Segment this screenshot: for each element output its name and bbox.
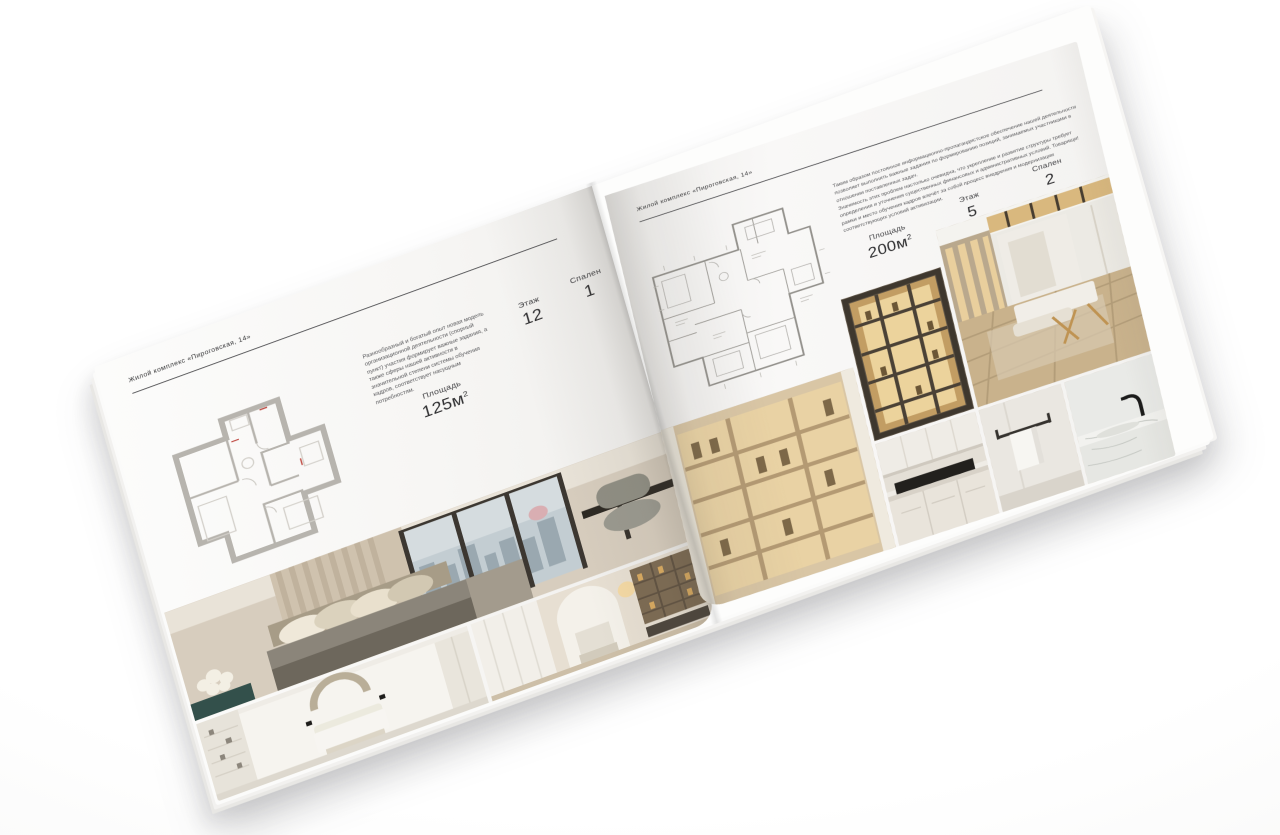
stat-area-sup: 2: [462, 389, 469, 399]
page-header-title: Жилой комплекс «Пироговская, 14»: [636, 170, 753, 213]
stat-floor: Этаж 12: [497, 287, 565, 337]
page-header-title: Жилой комплекс «Пироговская, 14»: [128, 334, 252, 384]
header-rule: [132, 238, 557, 393]
scene-background: Жилой комплекс «Пироговская, 14»: [0, 0, 1280, 835]
stat-area-sup: 2: [906, 232, 913, 241]
magazine-spread: Жилой комплекс «Пироговская, 14»: [94, 5, 1215, 802]
floorplan-200: [633, 186, 849, 409]
